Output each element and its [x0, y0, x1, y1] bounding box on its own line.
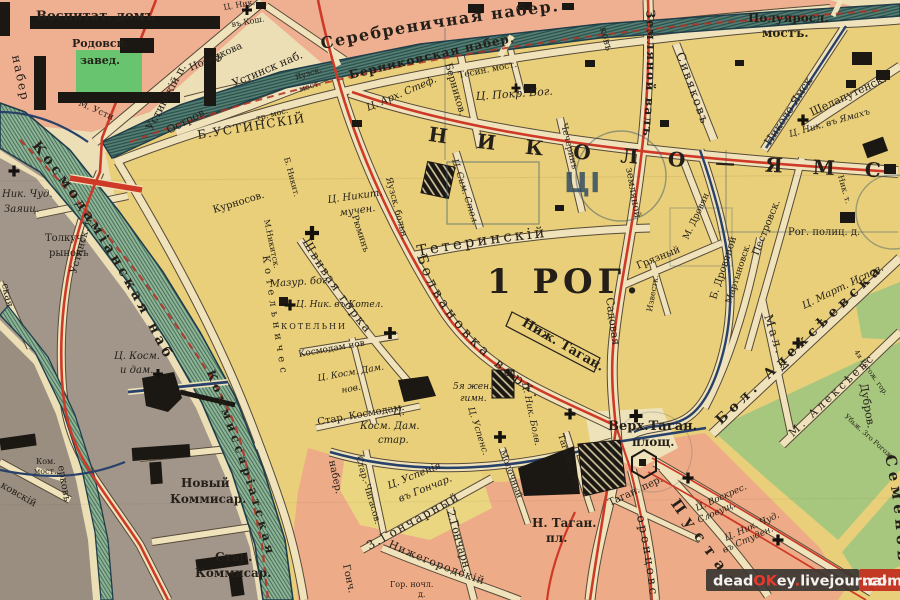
watermark-site-text: deadOKey.livejournal — [713, 574, 887, 590]
map-label: Н. Таган. — [532, 516, 597, 530]
map-canvas: Воспитат. домъРодовсп.завед.Ц. Ник.въ Ко… — [0, 0, 900, 600]
map-label: Ком. — [36, 457, 56, 466]
map-label: гимн. — [460, 394, 487, 404]
hexagon-inner-building — [639, 459, 646, 466]
watermark-domain-suffix: .com — [863, 574, 900, 590]
map-label: Коммисар. — [195, 566, 271, 580]
map-label: рынокъ — [49, 248, 89, 259]
map-label: Верх.Таган. — [608, 419, 697, 434]
map-label: мост. — [34, 467, 57, 476]
map-label: Коммисар. — [170, 492, 246, 506]
map-label: стар. — [378, 435, 409, 446]
map-label: Ц. — [393, 407, 405, 418]
map-label: Толкуч. — [45, 233, 86, 244]
map-label: ЦІ — [564, 166, 600, 199]
map-label: Ник. Чуд. — [1, 189, 53, 200]
map-label: Новый — [181, 476, 230, 490]
map-label: Родовсп. — [72, 37, 129, 50]
map-label: и дам. — [120, 365, 153, 376]
map-label: площ. — [632, 435, 674, 449]
map-label: Ф — [214, 54, 222, 65]
watermark: deadOKey.livejournal .com — [706, 569, 900, 591]
map-label: КОТЕЛЬНИ — [281, 322, 347, 331]
map-label: 1 РОГ. — [487, 262, 643, 302]
map-label: Стар. — [215, 550, 252, 564]
map-label: Косм. Дам. — [359, 421, 420, 432]
map-label: Полуяросл. — [748, 11, 829, 25]
map-label: завед. — [80, 54, 120, 67]
map-label: Ц. Косм. — [114, 351, 160, 362]
map-label: Заяиц. — [4, 204, 39, 215]
map-label: пл. — [546, 531, 567, 545]
map-label: Гор. ночл. — [390, 580, 433, 589]
vintage-moscow-map: Воспитат. домъРодовсп.завед.Ц. Ник.въ Ко… — [0, 0, 900, 600]
map-label: мостъ. — [762, 26, 809, 40]
map-label: Воспитат. домъ — [36, 9, 155, 24]
yauza-hospital-hatched-building — [421, 161, 455, 198]
map-label: Рог. полиц. д. — [788, 227, 860, 238]
map-label: д. — [418, 590, 425, 599]
taganka-hatched-building — [578, 440, 626, 496]
map-label: 5я жен. — [453, 382, 492, 392]
